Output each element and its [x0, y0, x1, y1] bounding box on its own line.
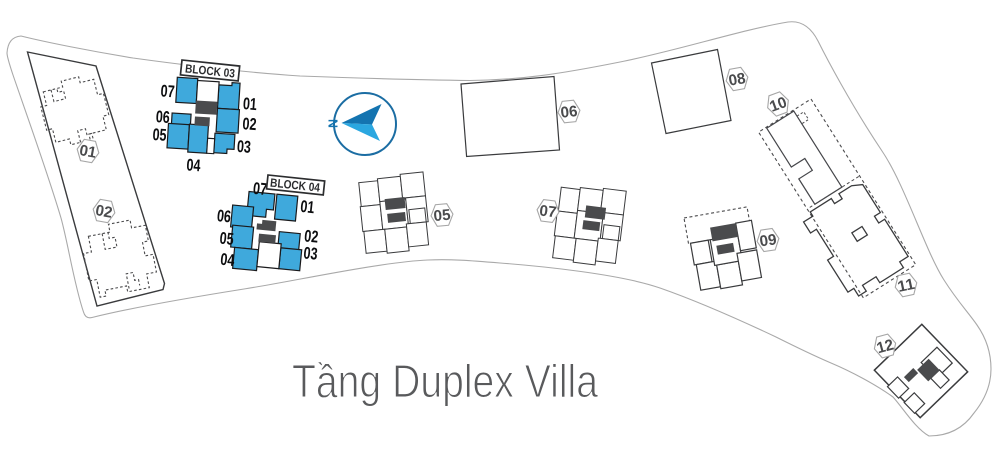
svg-text:05: 05 [152, 125, 167, 145]
svg-text:09: 09 [759, 231, 779, 250]
svg-text:BLOCK 04: BLOCK 04 [269, 176, 320, 195]
svg-text:03: 03 [236, 137, 251, 157]
svg-text:06: 06 [560, 103, 579, 122]
svg-text:07: 07 [538, 202, 557, 221]
svg-text:02: 02 [94, 202, 114, 222]
svg-text:02: 02 [242, 114, 257, 134]
svg-text:07: 07 [252, 179, 268, 200]
svg-text:03: 03 [303, 244, 319, 265]
svg-text:07: 07 [160, 82, 175, 102]
svg-text:05: 05 [219, 229, 235, 250]
svg-text:N: N [327, 119, 341, 128]
svg-text:01: 01 [242, 94, 257, 114]
svg-text:01: 01 [78, 142, 98, 162]
svg-text:08: 08 [727, 70, 747, 90]
svg-text:01: 01 [299, 197, 315, 218]
svg-text:04: 04 [186, 156, 202, 176]
svg-text:06: 06 [216, 206, 232, 227]
svg-text:04: 04 [219, 250, 236, 271]
svg-text:Tầng Duplex Villa: Tầng Duplex Villa [292, 355, 598, 407]
svg-text:05: 05 [433, 207, 452, 225]
